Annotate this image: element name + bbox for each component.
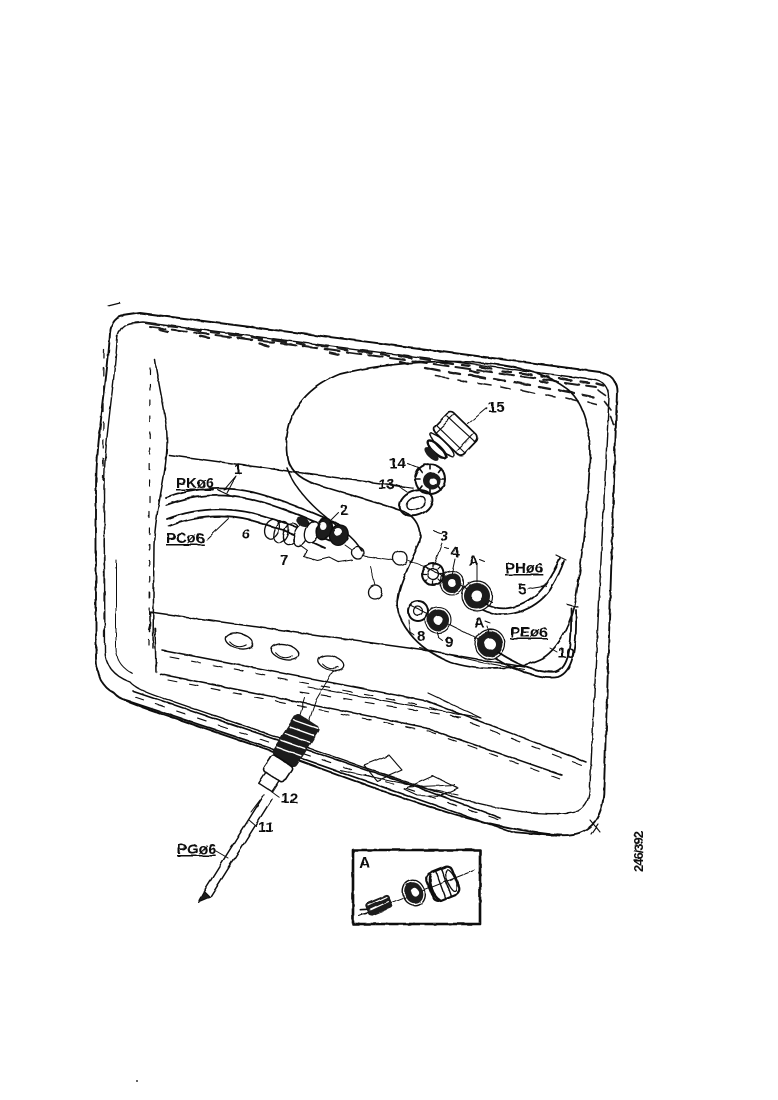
svg-text:3: 3: [440, 528, 448, 545]
svg-text:8: 8: [417, 628, 425, 645]
svg-text:PGø6: PGø6: [177, 841, 216, 858]
svg-text:246/392: 246/392: [631, 831, 646, 872]
svg-text:1: 1: [234, 461, 242, 478]
svg-text:14: 14: [389, 455, 406, 472]
svg-text:PCø6: PCø6: [166, 530, 204, 547]
svg-text:4: 4: [451, 544, 460, 561]
svg-text:A: A: [359, 855, 371, 872]
svg-text:11: 11: [258, 819, 274, 836]
svg-text:12: 12: [281, 790, 298, 807]
svg-text:A: A: [474, 614, 484, 630]
svg-text:10: 10: [558, 645, 575, 662]
svg-text:6: 6: [242, 526, 250, 543]
svg-text:2: 2: [340, 502, 348, 519]
svg-text:13: 13: [378, 476, 395, 493]
svg-text:7: 7: [280, 552, 288, 569]
svg-text:9: 9: [445, 634, 453, 651]
svg-text:PKø6: PKø6: [176, 475, 214, 492]
svg-text:PEø6: PEø6: [510, 624, 548, 641]
svg-text:PHø6: PHø6: [505, 560, 543, 577]
svg-text:15: 15: [488, 399, 505, 416]
svg-text:5: 5: [518, 581, 526, 598]
